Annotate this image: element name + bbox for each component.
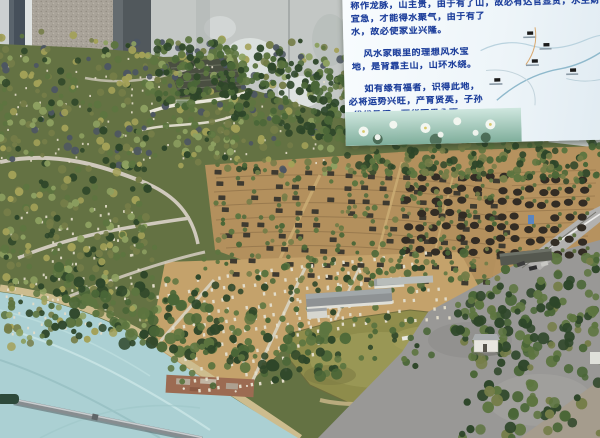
white-house	[472, 334, 500, 356]
board-text-line: 宜急，才能得水聚气，由于有了	[351, 12, 486, 26]
blue-portable-unit	[528, 215, 534, 224]
board-text-line: 必将运势兴旺，产育贤英，子孙	[349, 95, 484, 109]
board-text-line: 地，是背靠主山，山环水绕。	[352, 60, 477, 74]
board-text-line: 如有缘有福者，识得此地，	[364, 82, 479, 96]
map-location-markers	[488, 29, 600, 85]
flower-photo-strip	[345, 108, 522, 146]
feng-shui-site-map	[475, 17, 600, 108]
rod-handle	[0, 394, 19, 404]
board-text-line: 水，故必使家业兴隆。	[351, 25, 447, 38]
edge-building	[590, 352, 600, 364]
info-board: 称作龙脉，山主贵，由于有了山，故必有达官显贵，水主财 宜急，才能得水聚气，由于有…	[342, 0, 600, 146]
model-photograph: 称作龙脉，山主贵，由于有了山，故必有达官显贵，水主财 宜急，才能得水聚气，由于有…	[0, 0, 600, 438]
board-text-line: 风水家眼里的理想风水宝	[364, 47, 470, 61]
